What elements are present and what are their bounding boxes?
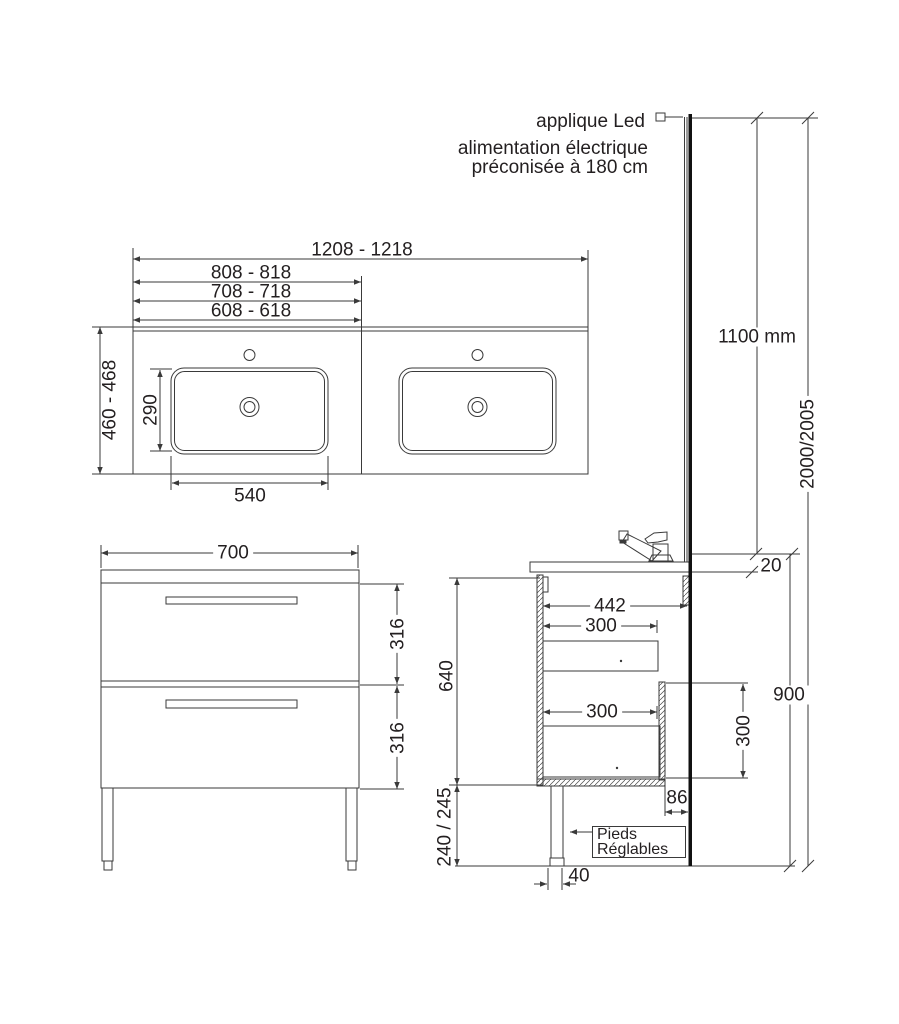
dim-plan-depth: 460 - 468 [101, 360, 120, 440]
back-panel-section [659, 682, 665, 780]
alimentation-note-line2: préconisée à 180 cm [440, 158, 648, 177]
adjustable-feet-line1: Pieds [597, 827, 685, 842]
dim-back-recess: 86 [666, 789, 687, 808]
right-basin [399, 368, 556, 454]
left-drain [240, 398, 259, 417]
dim-basin-width: 540 [234, 487, 266, 506]
dim-foot-width: 40 [568, 867, 589, 886]
alimentation-note-line1: alimentation électrique [440, 139, 648, 158]
faucet [619, 531, 673, 561]
dim-plan-total-width: 1208 - 1218 [311, 241, 412, 260]
dim-cabinet-depth: 442 [590, 597, 630, 616]
right-faucet-hole [472, 350, 483, 361]
upper-drawer-section [543, 641, 658, 671]
dim-upper-drawer-height: 316 [389, 615, 408, 653]
plan-view-drawing [92, 248, 588, 490]
lower-drawer-section [543, 726, 660, 777]
upper-drawer-handle [166, 597, 297, 604]
wall-panel-line [689, 114, 693, 866]
left-basin [171, 368, 328, 454]
dim-upper-drawer-depth: 300 [581, 617, 621, 636]
dim-plan-width-option-1: 608 - 618 [211, 302, 291, 321]
countertop-section [530, 562, 690, 572]
applique-led-note: applique Led [495, 112, 645, 131]
front-left-leg [102, 788, 113, 861]
technical-drawing-vanity: applique Led alimentation électrique pré… [0, 0, 899, 1024]
lower-drawer-handle [166, 700, 297, 708]
dim-mirror-height: 1100 mm [714, 328, 800, 347]
dim-back-panel-height: 300 [735, 712, 754, 750]
dim-total-height: 2000/2005 [799, 396, 818, 492]
front-right-leg [346, 788, 357, 861]
alimentation-note: alimentation électrique préconisée à 180… [440, 139, 648, 177]
applique-led-marker [656, 113, 665, 121]
dim-countertop-thickness: 20 [760, 557, 781, 576]
dim-lower-drawer-height: 316 [389, 719, 408, 757]
left-faucet-hole [244, 350, 255, 361]
dim-basin-depth: 290 [142, 394, 161, 426]
dim-cabinet-height: 640 [438, 660, 457, 692]
dim-plan-width-option-3: 808 - 818 [211, 264, 291, 283]
dim-plan-width-option-2: 708 - 718 [211, 283, 291, 302]
right-drain [468, 398, 487, 417]
dim-leg-height: 240 / 245 [436, 787, 455, 866]
dim-worktop-height: 900 [769, 686, 809, 705]
dim-lower-drawer-depth: 300 [582, 703, 622, 722]
side-leg [551, 786, 563, 858]
slash-ticks [746, 112, 814, 872]
dim-cabinet-width: 700 [213, 544, 253, 563]
adjustable-feet-callout: Pieds Réglables [592, 826, 686, 858]
elevation-drawing [656, 112, 818, 872]
adjustable-feet-line2: Réglables [597, 842, 685, 857]
front-view-drawing [101, 545, 404, 870]
